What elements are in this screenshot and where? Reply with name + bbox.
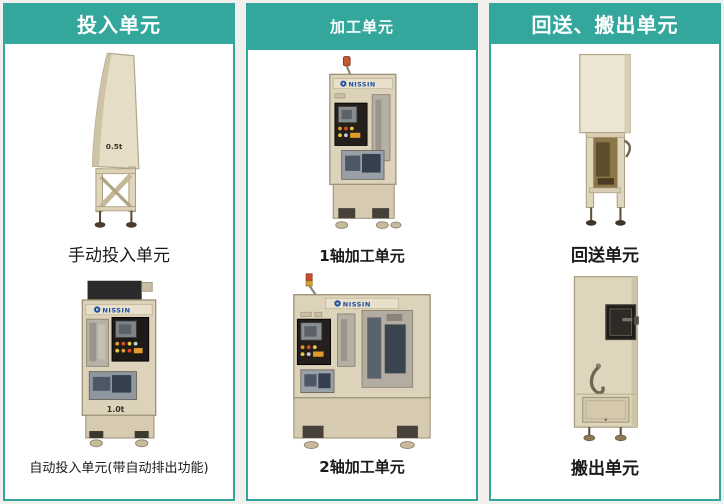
carryout-machine-graphic (543, 270, 667, 452)
manual-unit-badge: 0.5t (106, 142, 123, 151)
one-axis-machine-graphic: NISSIN (294, 54, 430, 242)
1axis-unit-caption: 1轴加工单元 (319, 242, 404, 268)
auto-input-machine-graphic: NISSIN (49, 272, 189, 452)
figure-return-unit: 回送单元 (491, 44, 719, 266)
two-axis-machine-graphic: NISSIN (274, 272, 450, 452)
carryout-unit-image (491, 266, 719, 452)
auto-input-unit-caption: 自动投入单元(带自动排出功能) (29, 452, 208, 480)
figure-manual-input-unit: 0.5t 手动投入单元 (5, 44, 233, 266)
return-unit-image (491, 44, 719, 240)
column-processing-body: NISSIN (246, 50, 478, 501)
catalog-page: 投入单元 0.5t (0, 0, 724, 504)
manual-input-machine-graphic: 0.5t (53, 48, 185, 240)
manual-input-unit-caption: 手动投入单元 (68, 240, 170, 266)
return-unit-caption: 回送单元 (571, 240, 639, 266)
auto-unit-badge: 1.0t (107, 405, 125, 414)
return-machine-graphic (544, 48, 666, 240)
two-axis-brand: NISSIN (343, 301, 371, 309)
column-input-unit: 投入单元 0.5t (3, 3, 235, 501)
column-input-header: 投入单元 (3, 3, 235, 44)
manual-input-unit-image: 0.5t (5, 44, 233, 240)
column-return-carryout-unit: 回送、搬出单元 (489, 3, 721, 501)
auto-unit-brand: NISSIN (102, 307, 130, 315)
column-return-body: 回送单元 (489, 44, 721, 501)
column-processing-header: 加工单元 (246, 3, 478, 50)
column-return-header: 回送、搬出单元 (489, 3, 721, 44)
column-input-body: 0.5t 手动投入单元 (3, 44, 235, 501)
figure-auto-input-unit: NISSIN (5, 266, 233, 480)
1axis-unit-image: NISSIN (248, 50, 476, 242)
2axis-unit-image: NISSIN (248, 268, 476, 452)
figure-carryout-unit: 搬出单元 (491, 266, 719, 480)
column-processing-unit: 加工单元 NISSIN (246, 3, 478, 501)
2axis-unit-caption: 2轴加工单元 (319, 452, 404, 480)
one-axis-brand: NISSIN (348, 82, 375, 89)
carryout-unit-caption: 搬出单元 (571, 452, 639, 480)
figure-2axis-unit: NISSIN (248, 268, 476, 480)
auto-input-unit-image: NISSIN (5, 266, 233, 452)
figure-1axis-unit: NISSIN (248, 50, 476, 268)
